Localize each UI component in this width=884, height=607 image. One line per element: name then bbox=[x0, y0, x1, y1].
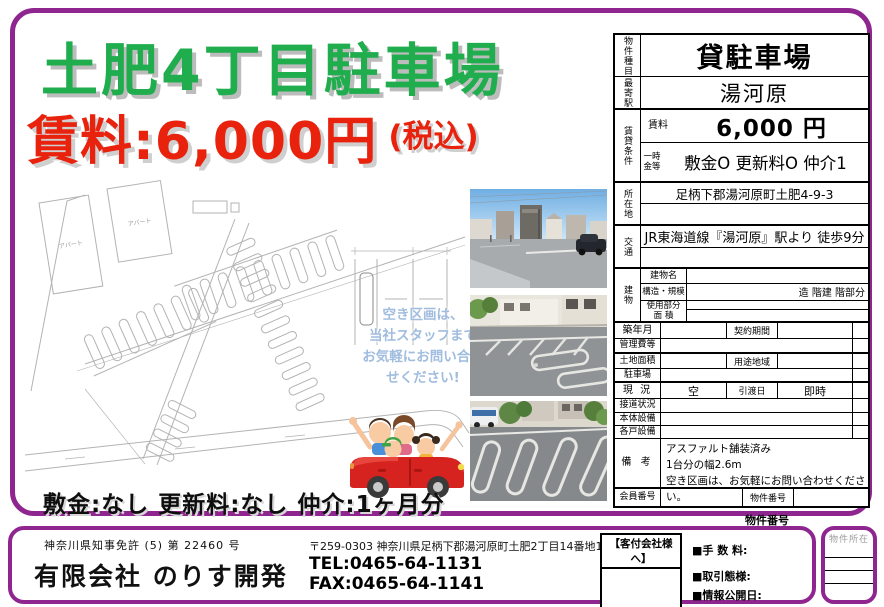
flyer-title: 土肥4丁目駐車場 bbox=[41, 25, 504, 107]
property-location-label: 物件所在 bbox=[825, 532, 873, 545]
company-name: 有限会社 のりす開発 bbox=[34, 557, 288, 593]
photo-parking-stalls bbox=[470, 401, 607, 501]
status-value: 空 bbox=[661, 383, 726, 398]
table-label-property-type: 物件種目 bbox=[615, 35, 641, 76]
deal-info-lines: ■手 数 料: ■取引態様: ■情報公開日: bbox=[692, 542, 762, 606]
table-label-building: 建物 bbox=[615, 269, 641, 321]
fax-number: FAX:0465-64-1141 bbox=[309, 574, 484, 594]
transaction-line: ■取引態様: bbox=[692, 568, 762, 584]
table-label-rental-terms: 賃貸条件 bbox=[615, 110, 641, 181]
agent-company-box: 【客付会社様へ】 bbox=[600, 533, 682, 607]
apartment-label: アパート bbox=[59, 240, 84, 251]
onetime-label: 一時金等 bbox=[641, 143, 663, 181]
table-label-address: 所在地 bbox=[615, 183, 641, 224]
station-value: 湯河原 bbox=[641, 77, 868, 108]
roadside-label: 接道状況 bbox=[615, 399, 661, 412]
zoning-label: 用途地域 bbox=[726, 354, 778, 368]
land-label: 土地面積 bbox=[615, 354, 661, 368]
price-row: 賃料:6,000円 (税込) bbox=[27, 99, 479, 174]
remarks-value: アスファルト舗装済み 1台分の幅2.6m 空き区画は、お気軽にお問い合わせくださ… bbox=[661, 439, 868, 487]
table-label-station: 最寄駅 bbox=[615, 77, 641, 108]
rent-label: 賃料 bbox=[641, 110, 675, 142]
main-panel: アパート アパート bbox=[10, 8, 872, 516]
disclosure-line: ■情報公開日: bbox=[692, 587, 762, 603]
company-address: 〒259-0303 神奈川県足柄下郡湯河原町土肥2丁目14番地10 bbox=[309, 538, 609, 554]
agent-box-label: 【客付会社様へ】 bbox=[600, 533, 682, 569]
price-text: 賃料:6,000円 bbox=[27, 112, 377, 172]
apartment-label-2: アパート bbox=[127, 217, 152, 228]
property-location-box: 物件所在 bbox=[821, 526, 877, 604]
building-name-label: 建物名 bbox=[641, 269, 687, 283]
contract-label: 契約期間 bbox=[726, 323, 778, 338]
license-number: 神奈川県知事免許 (5) 第 22460 号 bbox=[44, 537, 241, 553]
photo-parking-lot-markings bbox=[470, 295, 607, 396]
fee-line: ■手 数 料: bbox=[692, 542, 762, 558]
status-label: 現 況 bbox=[615, 383, 661, 398]
built-label: 築年月 bbox=[615, 323, 661, 338]
table-label-access: 交通 bbox=[615, 226, 641, 267]
terms-line: 敷金:なし 更新料:なし 仲介:1ヶ月分 bbox=[43, 485, 445, 519]
remarks-label: 備 考 bbox=[615, 439, 661, 487]
address-value: 足柄下郡湯河原町土肥4-9-3 bbox=[641, 183, 868, 203]
area-label: 使用部分 面 積 bbox=[641, 301, 687, 321]
price-tax-note: (税込) bbox=[388, 119, 478, 155]
structure-label: 構造・規模 bbox=[641, 284, 687, 299]
onetime-value: 敷金O 更新料O 仲介1 bbox=[663, 143, 868, 181]
company-info-box: 神奈川県知事免許 (5) 第 22460 号 有限会社 のりす開発 〒259-0… bbox=[8, 526, 816, 604]
property-no-label: 物件番号 bbox=[742, 489, 794, 506]
property-type-value: 貸駐車場 bbox=[641, 35, 868, 76]
equip-label: 本体設備 bbox=[615, 413, 661, 425]
rent-value: 6,000 円 bbox=[675, 110, 868, 142]
mgmt-label: 管理費等 bbox=[615, 339, 661, 352]
phone-number: TEL:0465-64-1131 bbox=[309, 554, 482, 574]
access-value: JR東海道線『湯河原』駅より 徒歩9分 bbox=[641, 226, 868, 247]
handover-value: 即時 bbox=[778, 383, 852, 398]
structure-value: 造 階建 階部分 bbox=[687, 284, 868, 299]
flyer-page: アパート アパート bbox=[0, 0, 884, 607]
parking-label: 駐車場 bbox=[615, 369, 661, 381]
unitequip-label: 各戸設備 bbox=[615, 426, 661, 438]
property-table: 物件種目 貸駐車場 最寄駅 湯河原 賃貸条件 賃料 6,000 円 一時金等 敷… bbox=[613, 33, 870, 508]
agent-box-blank bbox=[600, 569, 682, 607]
photo-street-view bbox=[470, 189, 607, 288]
handover-label: 引渡日 bbox=[726, 383, 778, 398]
member-no-label: 会員番号 bbox=[615, 489, 661, 506]
